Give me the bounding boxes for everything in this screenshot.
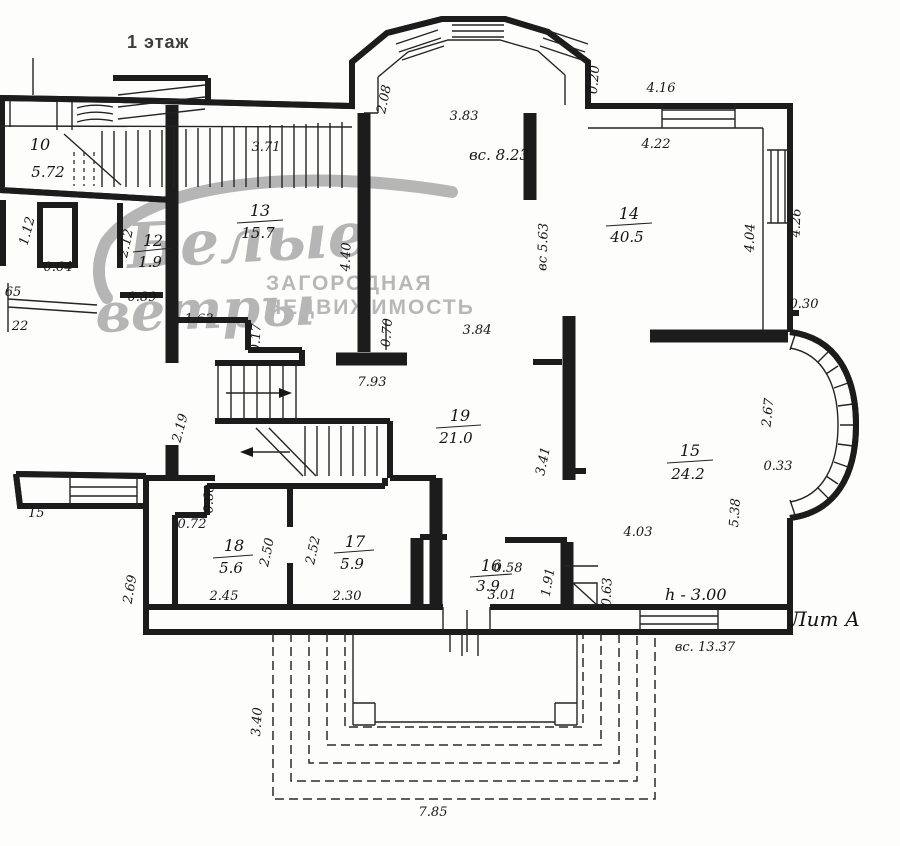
room-10-number: 10 (30, 135, 50, 154)
dim-3-40: 3.40 (249, 707, 266, 737)
dim-7-85: 7.85 (419, 805, 448, 820)
dim-0-20: 0.20 (586, 65, 603, 95)
dim-0-33: 0.33 (764, 459, 793, 474)
dim-7-93: 7.93 (358, 375, 387, 390)
dim-0-70: 0.70 (379, 318, 396, 348)
dim-0-60: 0.60 (202, 484, 218, 513)
window-right-bay (790, 335, 856, 515)
floor-plan-page: Белые ветры ЗАГОРОДНАЯ НЕДВИЖИМОСТЬ 1 эт… (0, 0, 900, 846)
balcony-15-label: 15 (28, 506, 45, 521)
room-15-area: 24.2 (670, 465, 704, 483)
dim-vs-8-23: вс. 8.23 (469, 146, 529, 164)
dim-2-19: 2.19 (169, 412, 191, 445)
dim-0-89: 0.89 (128, 290, 157, 305)
room-10-area: 5.72 (31, 163, 64, 181)
height-mark-label: h - 3.00 (665, 585, 727, 604)
floor-plan-svg: Белые ветры ЗАГОРОДНАЯ НЕДВИЖИМОСТЬ 1 эт… (0, 0, 900, 846)
dim-0-72: 0.72 (178, 517, 207, 532)
dim-65: 65 (5, 285, 22, 300)
dim-0-30: 0.30 (790, 297, 819, 312)
room-12-number: 12 (143, 231, 163, 250)
litera-label: Лит А (789, 607, 860, 631)
dim-4-22: 4.22 (641, 137, 671, 152)
dim-0-64: 0.64 (44, 260, 73, 275)
stair-arrow-down-head (240, 447, 253, 457)
dim-4-26: 4.26 (788, 208, 804, 238)
dim-3-84: 3.84 (463, 323, 492, 338)
window-balcony (70, 478, 137, 505)
terrace-steps (273, 633, 655, 799)
room-17-number: 17 (345, 532, 366, 551)
dim-vs-5-63: вс 5.63 (535, 223, 552, 271)
room-18-number: 18 (224, 536, 244, 555)
dim-3-83: 3.83 (450, 109, 479, 124)
dim-2-50: 2.50 (257, 537, 278, 569)
bottom-span-label: вс. 13.37 (675, 640, 736, 655)
room-13-number: 13 (250, 201, 270, 220)
room-18-area: 5.6 (219, 559, 243, 577)
dim-0-58: 0.58 (494, 561, 523, 576)
dim-4-16: 4.16 (646, 81, 676, 96)
dim-22: 22 (11, 319, 29, 334)
room-15-number: 15 (680, 441, 700, 460)
dim-1-91: 1.91 (539, 567, 559, 598)
dim-1-63: 1.63 (185, 312, 214, 327)
dim-4-03: 4.03 (623, 525, 653, 540)
dim-2-08: 2.08 (374, 84, 395, 116)
stair-arrow-up-head (279, 388, 292, 398)
dim-3-71: 3.71 (252, 140, 281, 155)
dim-5-38: 5.38 (727, 498, 744, 528)
dim-3-01: 3.01 (488, 588, 517, 603)
window-right-wall (767, 150, 790, 223)
room-12-area: 1.9 (138, 253, 162, 271)
page-title: 1 этаж (127, 32, 189, 52)
room-14-number: 14 (619, 204, 639, 223)
dim-2-67: 2.67 (759, 397, 777, 429)
dim-3-41: 3.41 (533, 446, 554, 477)
dim-2-45: 2.45 (209, 589, 239, 604)
dim-1-12: 1.12 (17, 215, 39, 247)
room-19-area: 21.0 (438, 429, 473, 447)
window-bottom-wall (640, 610, 718, 630)
watermark-caption1: ЗАГОРОДНАЯ (266, 272, 432, 295)
dim-2-69: 2.69 (120, 574, 140, 606)
room-14-area: 40.5 (609, 228, 643, 246)
dim-0-17: 0.17 (249, 322, 265, 352)
dim-4-04: 4.04 (742, 223, 758, 253)
room-17-area: 5.9 (340, 555, 364, 573)
dim-4-40: 4.40 (338, 242, 354, 272)
room-19-number: 19 (450, 406, 470, 425)
dim-0-63: 0.63 (600, 577, 616, 606)
room-13-area: 15.7 (241, 224, 275, 242)
dim-2-30: 2.30 (332, 589, 362, 604)
dim-2-52: 2.52 (303, 535, 324, 567)
